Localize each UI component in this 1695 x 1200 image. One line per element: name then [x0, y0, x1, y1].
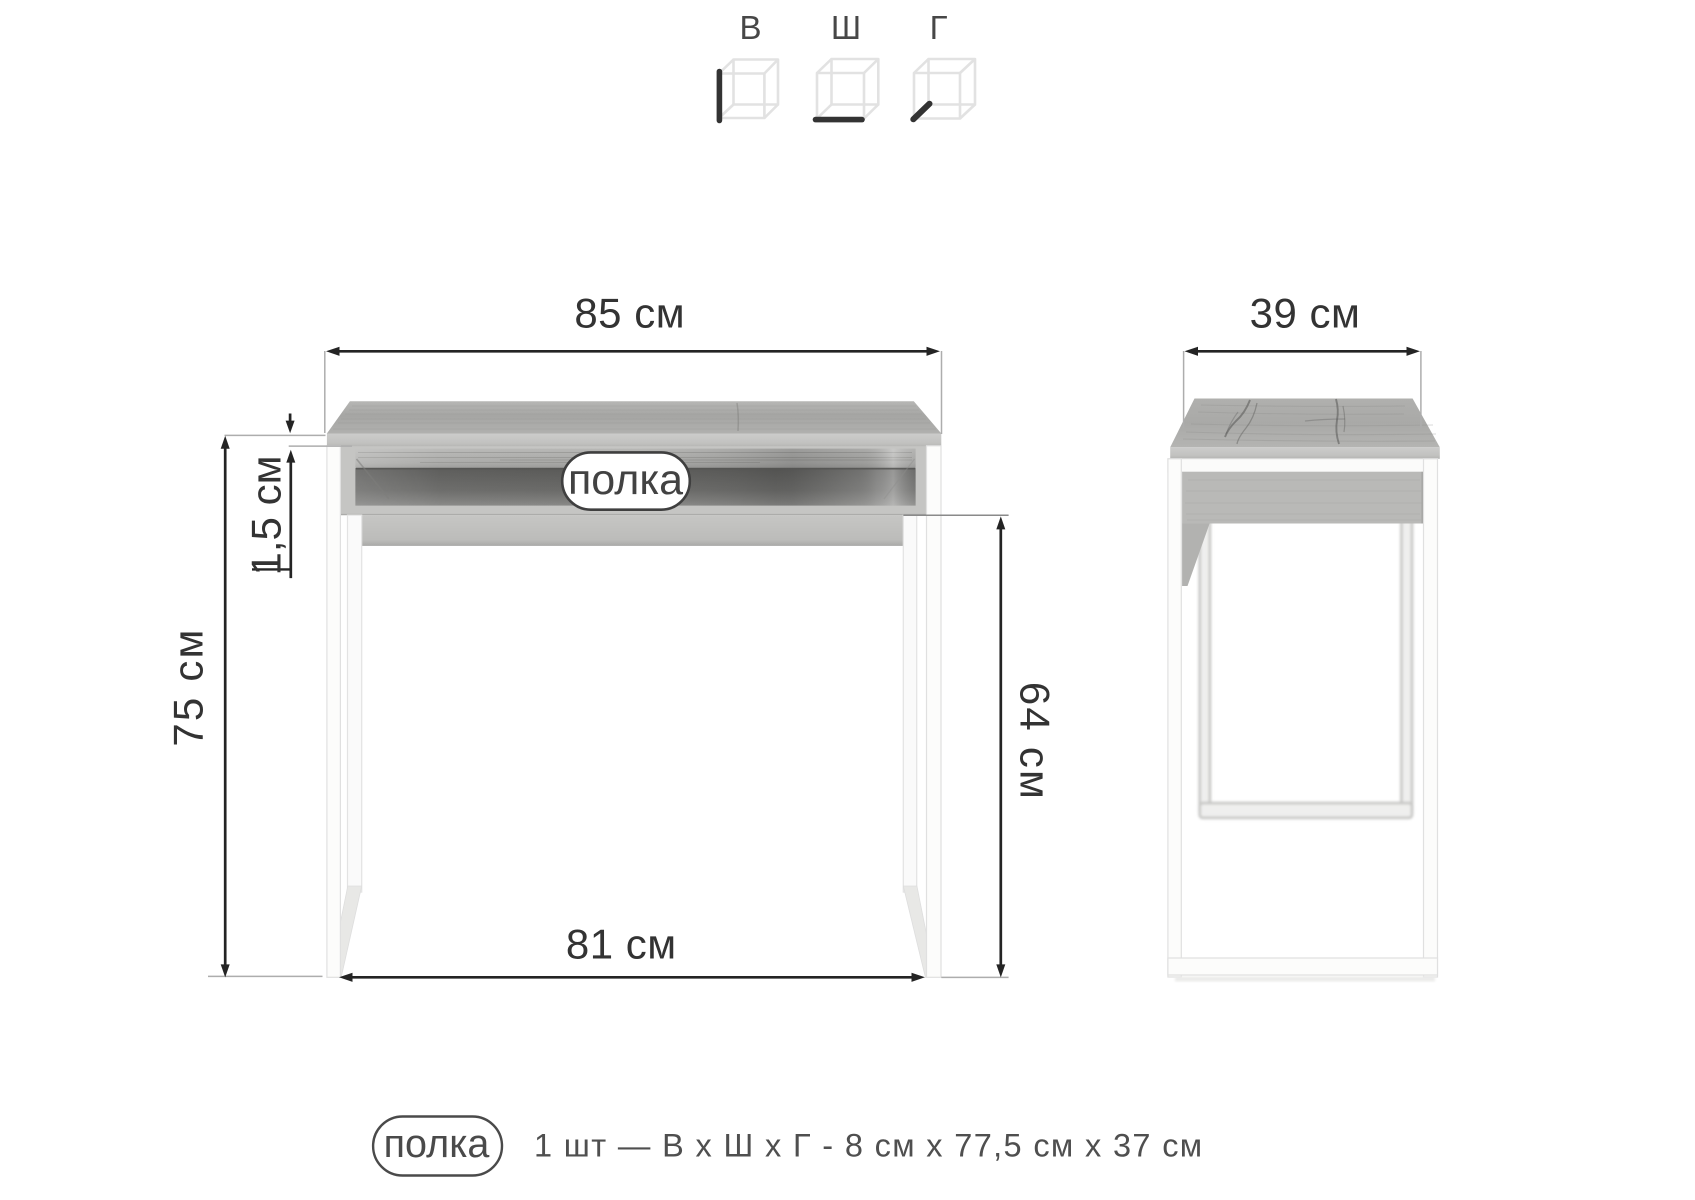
- svg-text:Ш: Ш: [831, 9, 861, 46]
- svg-text:81 см: 81 см: [566, 921, 677, 968]
- svg-text:85 см: 85 см: [574, 290, 685, 337]
- svg-text:Г: Г: [930, 9, 948, 46]
- svg-text:В: В: [739, 9, 761, 46]
- svg-text:полка: полка: [384, 1122, 490, 1166]
- svg-text:64 см: 64 см: [1012, 682, 1059, 801]
- svg-text:1,5 см: 1,5 см: [243, 456, 290, 576]
- svg-text:полка: полка: [568, 456, 683, 504]
- svg-text:39 см: 39 см: [1250, 290, 1361, 337]
- svg-text:1 шт — В х Ш х Г - 8 см х 77,5: 1 шт — В х Ш х Г - 8 см х 77,5 см х 37 с…: [534, 1128, 1204, 1164]
- svg-text:75 см: 75 см: [164, 627, 211, 746]
